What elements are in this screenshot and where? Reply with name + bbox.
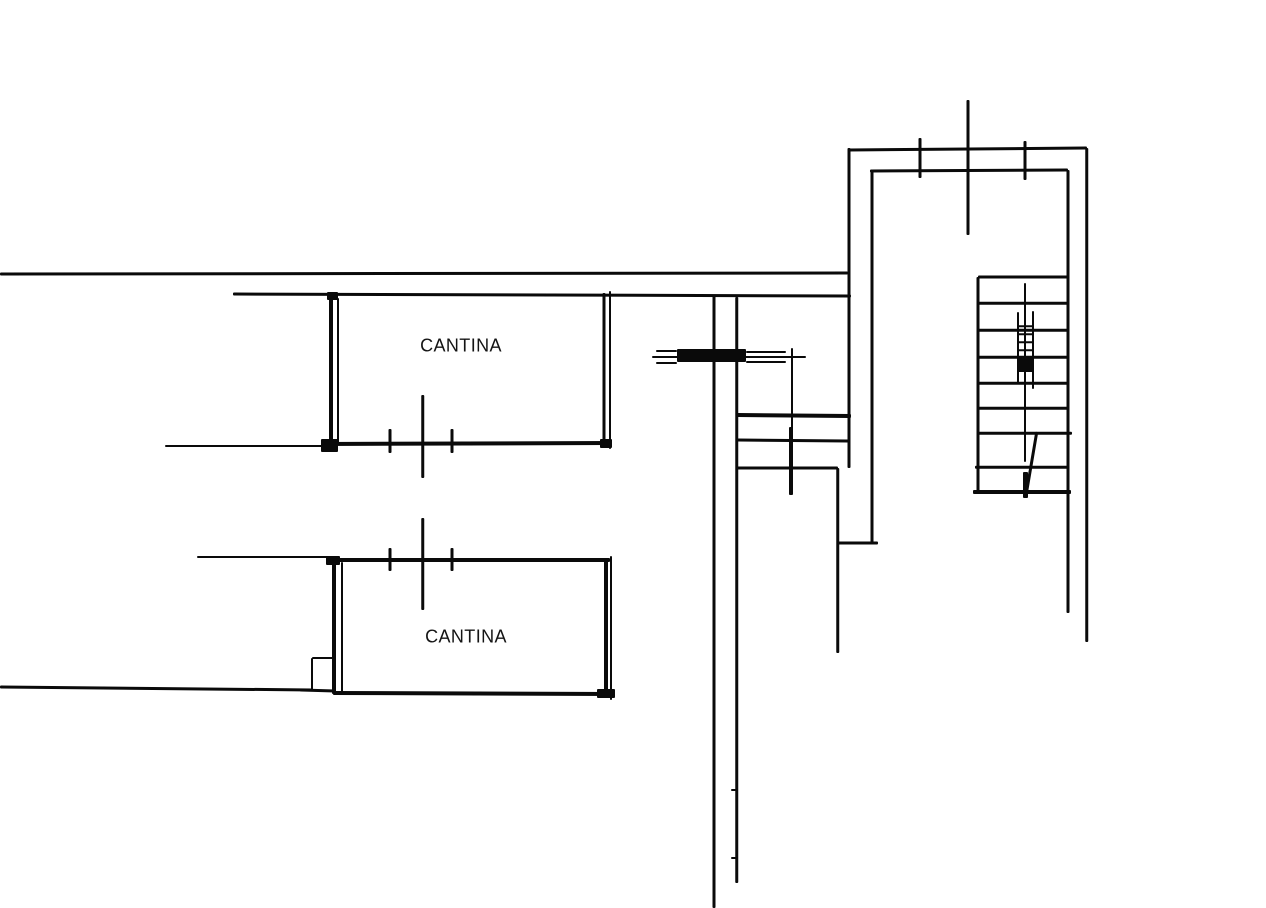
ink-corner xyxy=(597,689,615,698)
notch-left xyxy=(311,658,313,691)
cantina1-right-wall-double xyxy=(609,291,611,449)
ink-corner xyxy=(326,556,340,565)
door-leaf xyxy=(677,349,746,362)
cantina2-right-wall-double xyxy=(610,556,612,700)
cantina1-left-wall-double xyxy=(337,298,339,443)
room-label-cantina-lower: CANTINA xyxy=(425,627,507,648)
wall-tick xyxy=(451,548,454,571)
cantina2-bottom-wall xyxy=(333,691,613,696)
stair-tread xyxy=(978,302,1068,305)
stair-tread xyxy=(978,382,1068,385)
bottom-left-boundary xyxy=(0,686,313,692)
corridor-right-wall xyxy=(736,297,739,883)
mid-room-divider xyxy=(737,413,851,418)
stair-break-line xyxy=(1017,312,1019,383)
ink-corner xyxy=(321,439,338,452)
stair-break-fill xyxy=(1017,358,1034,372)
wall-jog xyxy=(838,542,878,545)
door-frame-line xyxy=(746,361,786,363)
stair-tread xyxy=(978,276,1068,279)
room-label-cantina-upper: CANTINA xyxy=(420,336,502,357)
corridor-nub xyxy=(731,789,738,791)
notch-top xyxy=(312,657,334,659)
door-jamb-tick xyxy=(791,348,793,430)
door-jamb-tick-thick xyxy=(789,427,793,495)
notch-bottom xyxy=(300,689,336,693)
stair-tread xyxy=(975,466,1068,469)
corridor-left-wall xyxy=(713,295,716,908)
cantina2-top-wall xyxy=(329,558,610,562)
stair-center-line xyxy=(1024,283,1026,462)
cantina2-left-wall-double xyxy=(341,562,343,695)
cantina1-bottom-wall xyxy=(322,441,612,446)
wall-tick-long xyxy=(967,100,970,235)
cantina1-right-wall xyxy=(603,293,606,445)
wall-tick xyxy=(919,138,922,178)
cantina2-top-leader xyxy=(197,556,333,558)
ink-corner xyxy=(600,439,612,448)
cantina2-left-wall xyxy=(332,560,336,694)
door-frame-line xyxy=(656,350,677,352)
cantina1-left-wall xyxy=(329,294,333,446)
top-boundary-wall xyxy=(0,272,848,276)
floor-plan: CANTINA CANTINA xyxy=(0,0,1266,908)
wall-tick xyxy=(389,429,392,453)
stair-tread xyxy=(978,329,1068,332)
stair-left-wall xyxy=(977,277,980,492)
stair-tread xyxy=(978,407,1068,410)
cantina1-bottom-leader xyxy=(165,445,333,447)
stairhall-outer-left-wall xyxy=(848,148,851,468)
wall-tick xyxy=(451,429,454,453)
stair-bottom-tread xyxy=(973,490,1071,494)
wall-tick xyxy=(1024,141,1027,180)
wall-tick-long xyxy=(422,395,425,478)
mid-room-wall xyxy=(737,467,838,470)
stairhall-outer-right-wall xyxy=(1086,148,1089,642)
stairhall-inner-left-wall xyxy=(871,170,874,543)
upper-wall-line xyxy=(233,293,851,298)
stairhall-inner-right-wall xyxy=(1067,170,1070,613)
cantina2-right-wall xyxy=(604,560,608,696)
door-frame-line xyxy=(746,351,786,353)
door-frame-line xyxy=(656,362,677,364)
ink-corner xyxy=(327,292,338,300)
stair-arrow-head xyxy=(1023,472,1028,498)
corridor-nub xyxy=(731,857,738,859)
lower-mid-wall xyxy=(837,468,840,653)
wall-tick xyxy=(389,548,392,571)
wall-tick-long xyxy=(422,518,425,610)
